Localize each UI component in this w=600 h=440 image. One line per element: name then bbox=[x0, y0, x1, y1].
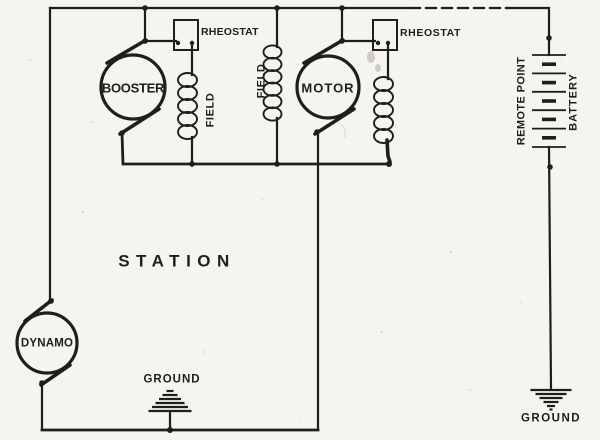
rheostat-booster-label: RHEOSTAT bbox=[201, 27, 259, 38]
circuit-linework bbox=[0, 0, 600, 440]
ground-remote-label: GROUND bbox=[521, 413, 581, 425]
station-label: STATION bbox=[118, 253, 236, 270]
booster-top-brush bbox=[107, 40, 146, 63]
inner-bus-wire bbox=[122, 133, 389, 164]
rheostat-motor-label: RHEOSTAT bbox=[400, 28, 461, 39]
field-motor-coil bbox=[374, 77, 393, 143]
paper-specks bbox=[29, 59, 563, 422]
field-booster-label: FIELD bbox=[206, 93, 217, 128]
wires bbox=[42, 8, 551, 430]
remote-point-label: REMOTE POINT bbox=[517, 57, 528, 146]
motor-branch-wire bbox=[342, 8, 375, 41]
circuit-diagram: STATION BOOSTER MOTOR DYNAMO RHEOSTAT RH… bbox=[0, 0, 600, 440]
battery-symbol bbox=[532, 55, 566, 147]
top-right-corner-wire bbox=[508, 8, 549, 55]
ground-symbol-station bbox=[149, 391, 192, 411]
field-booster-coil bbox=[178, 73, 197, 139]
rheostat-motor-box bbox=[373, 20, 397, 50]
motor-label: MOTOR bbox=[301, 82, 354, 95]
ground-symbol-remote bbox=[531, 390, 572, 410]
motor-top-brush bbox=[304, 40, 343, 63]
rheostat-booster-box bbox=[174, 20, 198, 50]
field-main-label: FIELD bbox=[257, 64, 268, 99]
ground-station-label: GROUND bbox=[143, 374, 200, 386]
booster-branch-wire bbox=[145, 8, 176, 41]
battery-label: BATTERY bbox=[569, 73, 580, 131]
motor-bottom-brush bbox=[315, 109, 354, 134]
junction-dots bbox=[39, 5, 553, 433]
booster-label: BOOSTER bbox=[102, 82, 164, 95]
battery-ground-wire bbox=[549, 147, 551, 388]
dynamo-label: DYNAMO bbox=[21, 338, 73, 350]
